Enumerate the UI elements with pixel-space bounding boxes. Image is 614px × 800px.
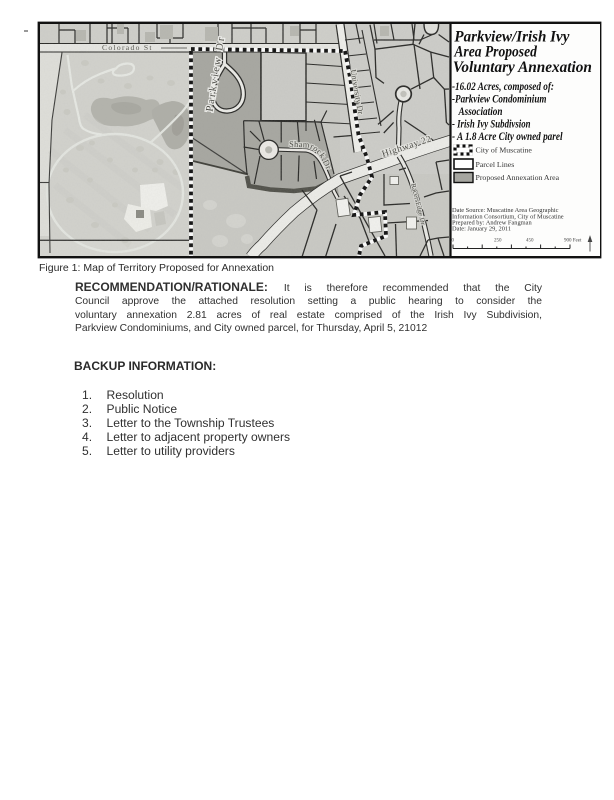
svg-text:City of Muscatine: City of Muscatine [476, 146, 533, 155]
svg-text:Parcel Lines: Parcel Lines [476, 160, 515, 169]
svg-text:Proposed Annexation Area: Proposed Annexation Area [476, 173, 560, 182]
svg-text:900 Feet: 900 Feet [564, 239, 582, 244]
svg-text:- A 1.8 Acre City owned parel: - A 1.8 Acre City owned parel [452, 129, 563, 143]
svg-text:Voluntary Annexation: Voluntary Annexation [453, 59, 592, 76]
svg-text:Area Proposed: Area Proposed [454, 44, 538, 61]
svg-text:250: 250 [494, 239, 502, 244]
svg-text:450: 450 [526, 239, 534, 244]
svg-text:Date: January 29, 2011: Date: January 29, 2011 [452, 226, 511, 233]
